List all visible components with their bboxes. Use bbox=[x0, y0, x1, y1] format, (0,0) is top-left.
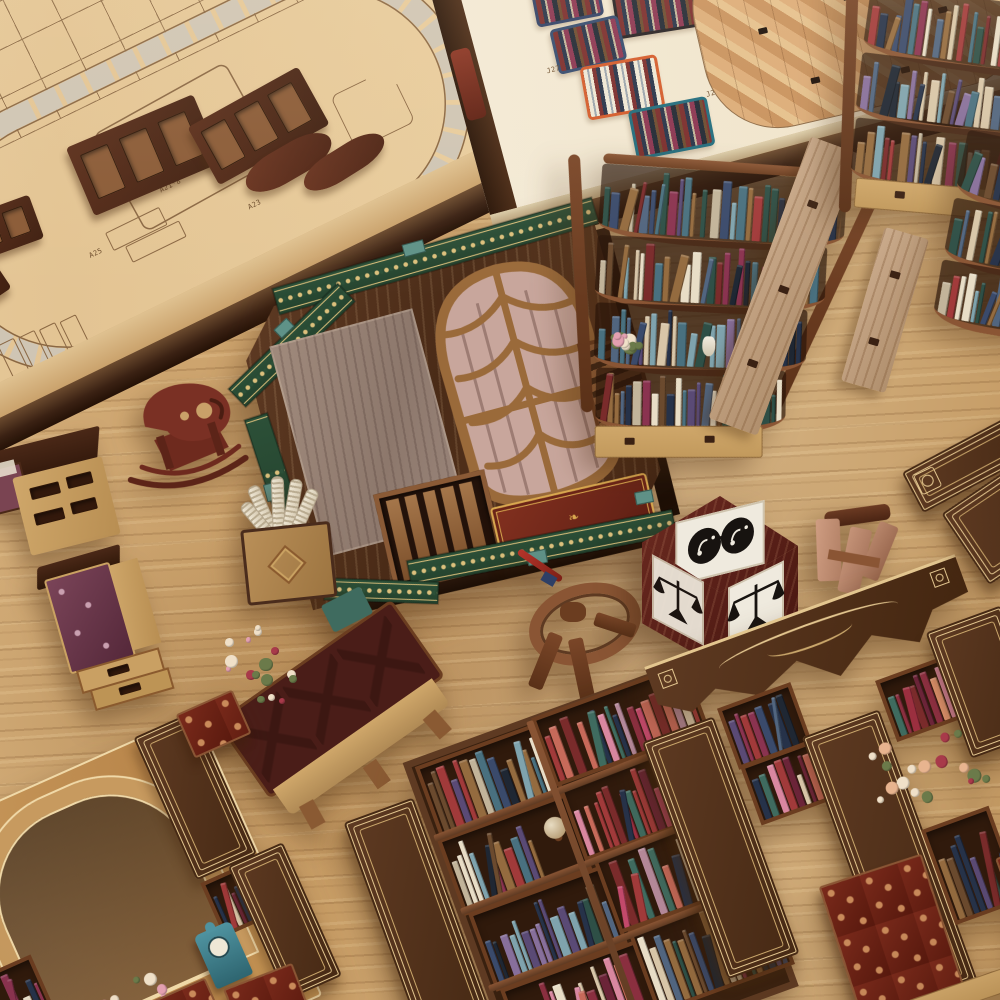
mini-flowers bbox=[610, 329, 645, 356]
book-spine bbox=[675, 378, 682, 426]
book-spine bbox=[682, 390, 687, 426]
flower-blossom bbox=[132, 975, 142, 985]
book-spine bbox=[605, 243, 614, 299]
flower-blossom bbox=[635, 342, 643, 350]
flower-blossom bbox=[933, 754, 949, 770]
flower-blossom bbox=[909, 787, 920, 798]
flower-blossom bbox=[878, 741, 894, 757]
flower-blossom bbox=[259, 658, 273, 672]
book-spine bbox=[625, 385, 632, 425]
flower-blossom bbox=[613, 332, 621, 340]
plaque-ornament: ❧ bbox=[567, 509, 581, 527]
ornate-panel-corner bbox=[890, 385, 1000, 590]
flower-blossom bbox=[953, 729, 963, 739]
flower-blossom bbox=[876, 795, 885, 804]
book-spine bbox=[614, 393, 620, 425]
rocking-chair bbox=[114, 371, 257, 502]
book-spine bbox=[795, 322, 802, 371]
book-spine-sticker-black bbox=[610, 0, 699, 39]
flower-blossom bbox=[906, 763, 917, 774]
flower-blossom bbox=[920, 790, 935, 805]
book-spine bbox=[659, 376, 666, 426]
book-spine bbox=[700, 189, 708, 237]
book-spine bbox=[687, 389, 696, 426]
book-spine bbox=[650, 313, 658, 365]
book-spine bbox=[722, 252, 731, 304]
flower-blossom bbox=[981, 774, 991, 784]
flower-blossom bbox=[246, 637, 251, 642]
flower-blossom bbox=[867, 751, 877, 761]
book-spine bbox=[632, 381, 642, 425]
photo-scene: A24 A25 A21*8 A23 A10 A22 A bbox=[0, 0, 1000, 1000]
ornate-dresser bbox=[32, 537, 186, 710]
flower-blossom bbox=[225, 655, 238, 668]
flower-blossom bbox=[271, 647, 279, 655]
book-spine bbox=[651, 393, 659, 426]
book-spine bbox=[743, 261, 750, 306]
book-spine bbox=[771, 394, 776, 428]
newspaper-cup bbox=[226, 485, 337, 607]
book-spine bbox=[662, 256, 670, 301]
book-spine bbox=[696, 383, 701, 427]
flower-blossom bbox=[225, 638, 234, 647]
book-spine bbox=[690, 252, 702, 303]
flower-blossom bbox=[880, 759, 893, 772]
part-label: J27 bbox=[546, 64, 561, 75]
book-spine bbox=[677, 322, 688, 366]
book-spine bbox=[620, 391, 625, 425]
book-spine bbox=[642, 381, 651, 426]
book-spine bbox=[609, 192, 621, 232]
book-spine bbox=[716, 324, 727, 368]
flower-blossom bbox=[109, 994, 120, 1000]
flower-blossom bbox=[916, 758, 934, 776]
shelf-base-board bbox=[595, 426, 763, 458]
book-spine bbox=[666, 394, 675, 426]
flower-blossom bbox=[939, 732, 951, 744]
book-spine bbox=[776, 380, 782, 428]
book-spine bbox=[598, 329, 606, 364]
